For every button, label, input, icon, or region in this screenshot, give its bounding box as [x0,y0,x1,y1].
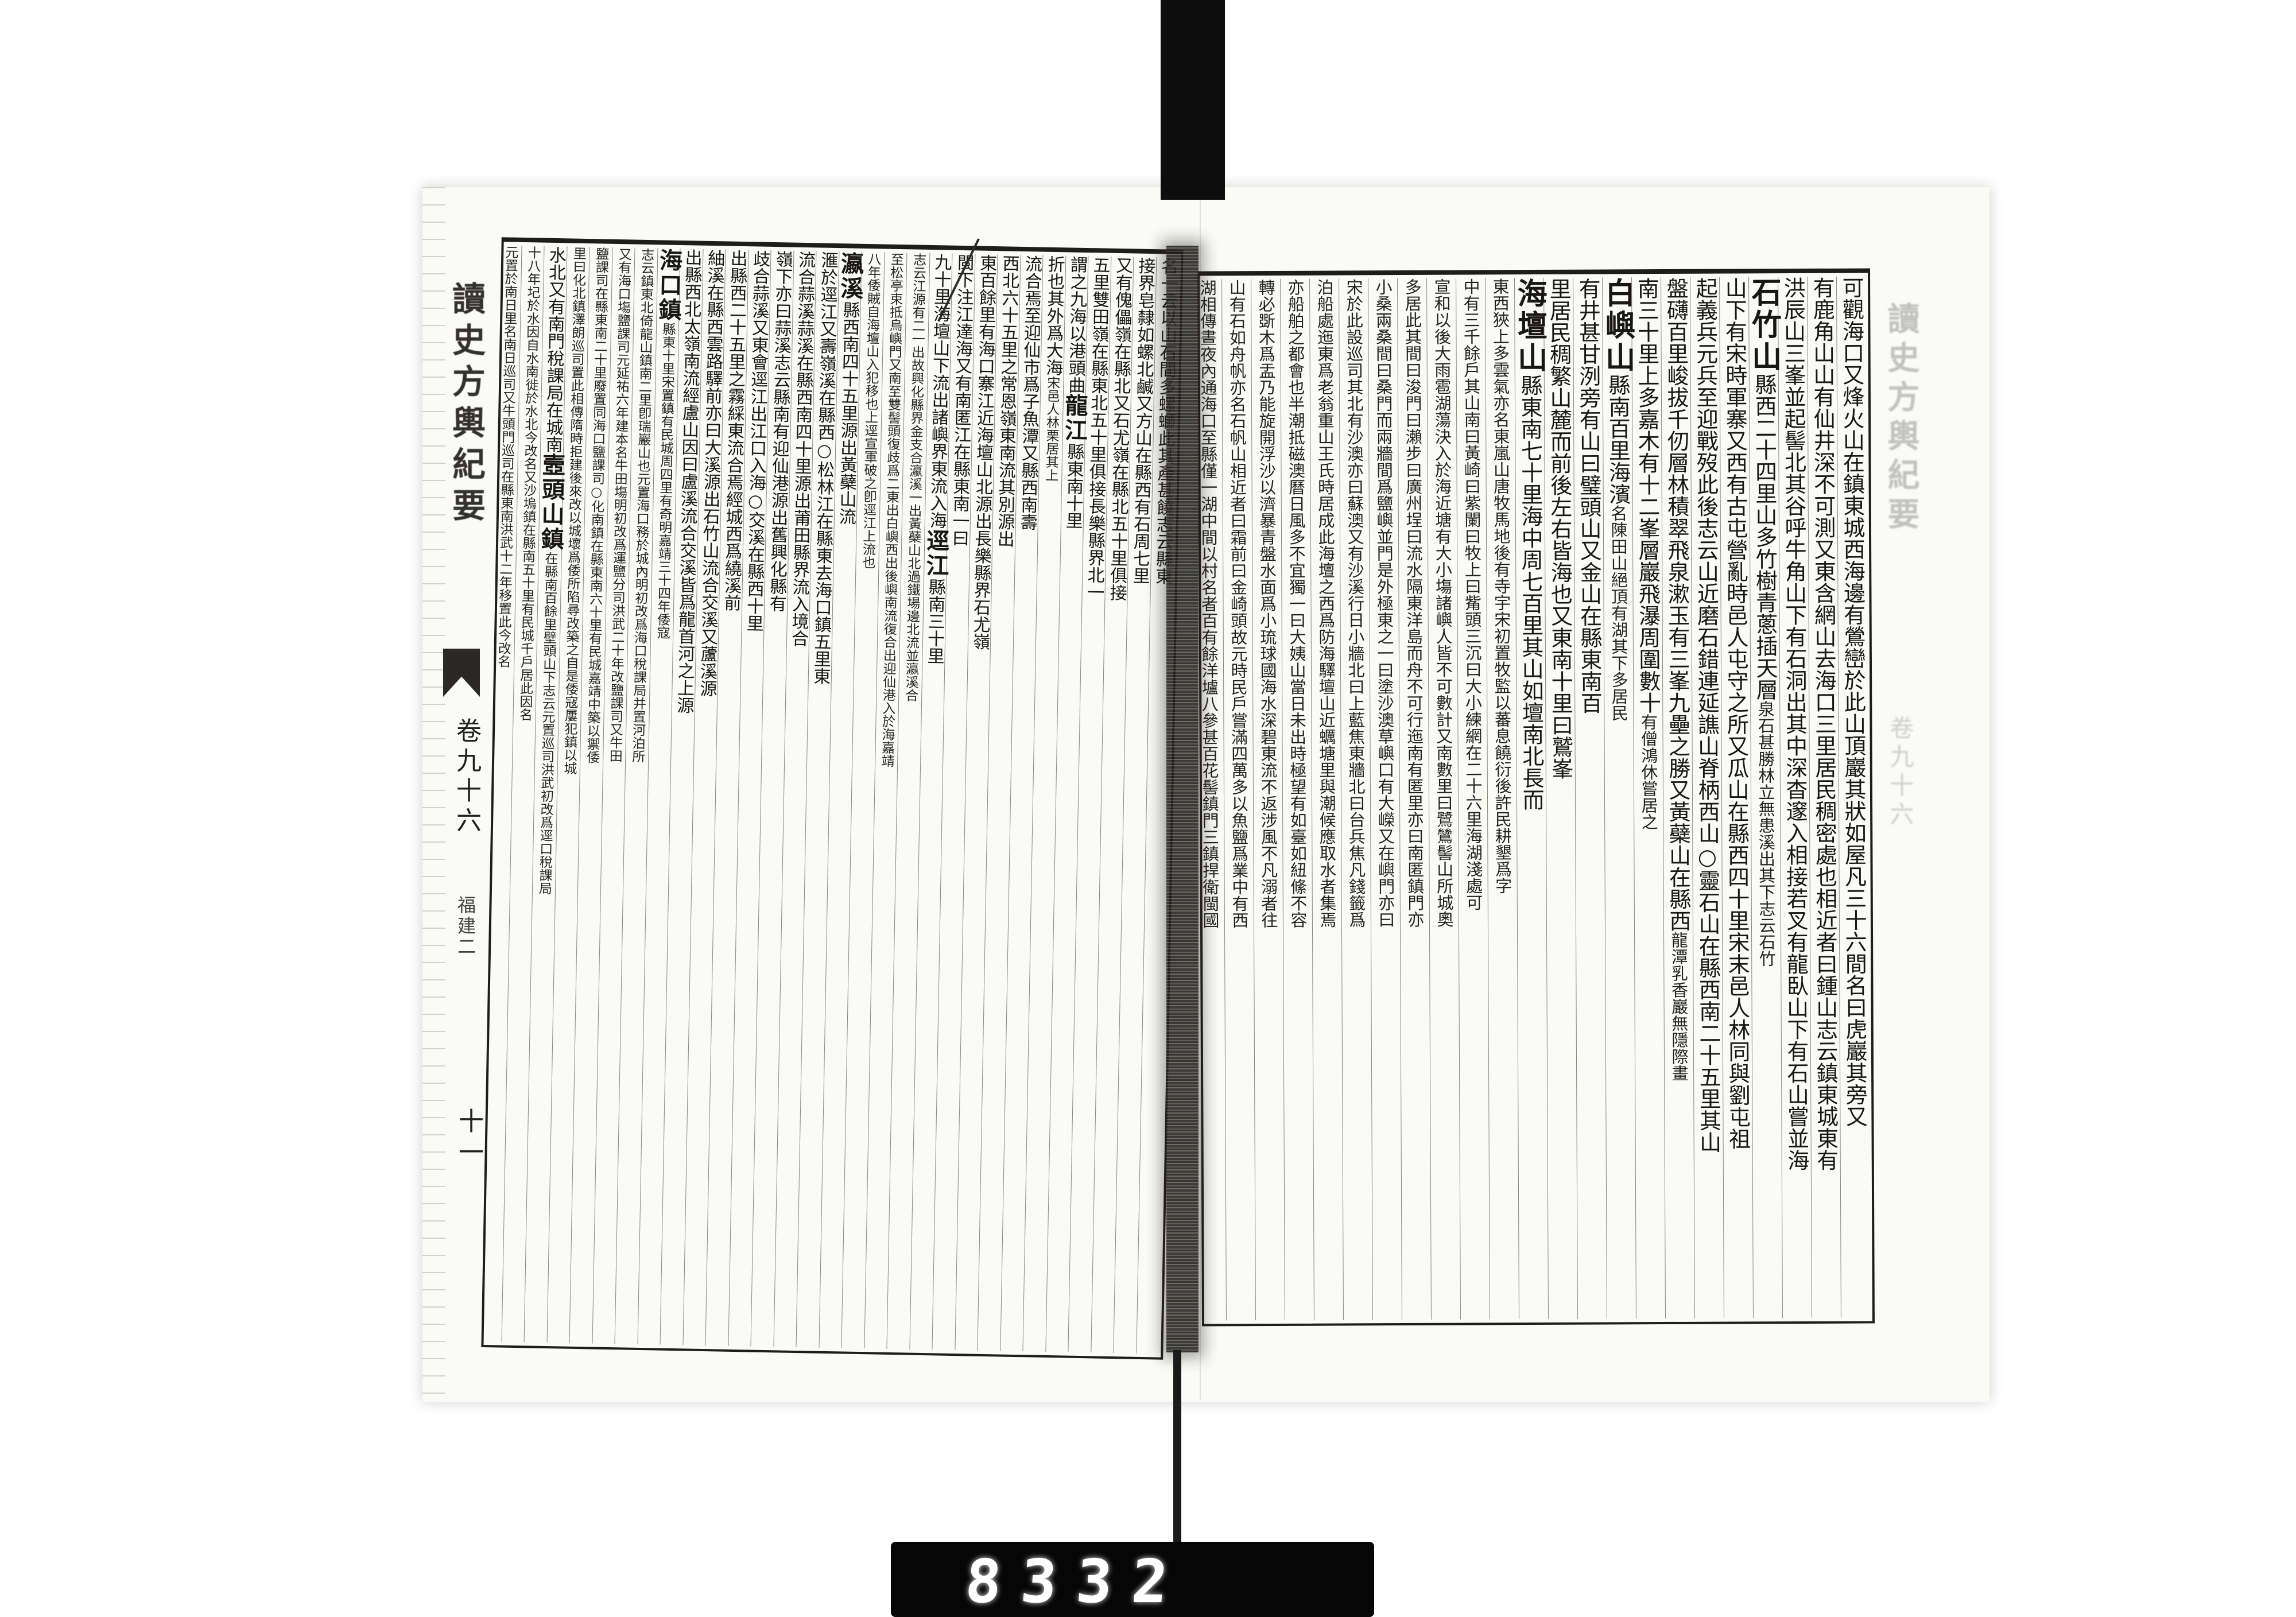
text-column: 山下有宋時軍寨又西有古屯營亂時邑人屯守之所又瓜山在縣西四十里宋末邑人林同與劉屯祖 [1719,277,1753,1318]
body-text: 洪辰山三峯並起髻北其谷呼牛角山下有石洞出其中深杳邃入相接若叉有龍臥山下有石山嘗並… [1780,277,1809,1171]
annotation-text: 東西狹上多雲氣亦名東嵐山唐牧馬地後有寺宇宋初置牧監以蕃息饒衍後許民耕墾爲字 [1490,278,1512,894]
body-text: 南三十里上多嘉木有十二峯層巖飛瀑周圍數十 [1634,277,1661,714]
body-text: 縣西二十四里山多竹樹青蔥插天層 [1751,373,1778,700]
body-text: 謂之九海以港頭曲 [1065,255,1087,394]
entry-heading: 逕江 [922,529,950,579]
text-column: 南三十里上多嘉木有十二峯層巖飛瀑周圍數十有僧鴻休嘗居之 [1631,277,1665,1319]
volume-label: 卷九十六 [448,718,484,837]
film-clamp-top-bar [1161,0,1225,200]
fishtail-mark [443,649,480,697]
body-text: 起義兵元兵至迎戰歿此後志云山近磨石錯連延譙山脊柄西山○靈石山在縣西南二十五里其山 [1692,277,1721,1153]
entry-heading: 瀛溪 [836,251,864,301]
left-margin-strip: 讀史方輿紀要 卷九十六 福建二 十一 [435,247,492,1355]
annotation-text: 宋邑人林栗居其上 [1043,376,1060,482]
annotation-text: 泉石甚勝林立無患溪出其下志云石竹 [1755,700,1776,967]
annotation-text: 宣和以後大雨雹湖蕩決入於海近塘有大小塲諸嶼人皆不可數計又南數里曰鷺鷥髻山所城奧 [1432,278,1454,928]
film-clamp-stem [1173,1350,1181,1545]
folio-number: 十一 [450,1108,487,1170]
annotation-text: 龍潭乳香巖無隱際畫 [1669,932,1689,1081]
body-text: 折也其外爲大海 [1042,255,1065,377]
annotation-text: 湖相傳晝夜內通海口至縣僅一湖中間以村名者百有餘洋壚八參甚百花髻鎮門三鎮捍衛閩國 [1197,279,1220,928]
text-column: 宋於此設巡司其北有沙澳亦曰蘇澳又有沙溪行日小牆北曰上藍焦東牆北曰台兵焦凡錢籤爲 [1339,278,1372,1320]
text-column: 東西狹上多雲氣亦名東嵐山唐牧馬地後有寺宇宋初置牧監以蕃息饒衍後許民耕墾爲字 [1485,278,1519,1319]
text-column: 盤礴百里峻拔千仞層林積翠飛泉漱玉有三峯九壘之勝又黃蘗山在縣西龍潭乳香巖無隱際畫 [1661,277,1694,1319]
annotation-text: 多居此其間曰浚門曰瀨步曰廣州埕曰流水隔東洋島而舟不可行迤南有匿里亦曰南匿鎮門亦 [1402,278,1425,928]
entry-heading: 壼頭山鎮 [537,453,565,552]
frame-counter-box: 8332 [891,1542,1374,1617]
text-column: 宣和以後大雨雹湖蕩決入於海近塘有大小塲諸嶼人皆不可數計又南數里曰鷺鷥髻山所城奧 [1426,278,1460,1320]
left-page-text-frame: 名一云以山石間多螺螄此其產甚饒志云縣東接界皂隸如螺北鹹又方山在縣西有石周七里又有… [481,237,1183,1359]
body-text: 水北又有南門稅課局在城南 [542,246,566,453]
text-column: 山有石如舟帆亦名石帆山相近者曰霜前曰金崎頭故元時民戶嘗滿四萬多以魚鹽爲業中有西 [1221,279,1255,1320]
annotation-text: 山有石如舟帆亦名石帆山相近者曰霜前曰金崎頭故元時民戶嘗滿四萬多以魚鹽爲業中有西 [1227,279,1249,928]
text-column: 起義兵元兵至迎戰歿此後志云山近磨石錯連延譙山脊柄西山○靈石山在縣西南二十五里其山 [1690,277,1724,1319]
annotation-text: 在縣南百餘里壁頭山下志云元置巡司洪武初改爲逕口稅課局 [536,552,557,895]
text-column: 泊船處迤東爲老翁重山王氏時居成此海壇之西爲防海驛壇山近蠣塘里與潮候應取水者集焉 [1309,278,1343,1320]
right-margin-strip: 讀史方輿紀要 卷九十六 [1874,279,1925,1324]
text-column: 海壇山縣東南七十里海中周七百里其山如壇南北長而 [1514,278,1548,1319]
entry-heading: 海口鎮 [654,248,682,323]
text-column: 湖相傳晝夜內通海口至縣僅一湖中間以村名者百有餘洋壚八參甚百花髻鎮門三鎮捍衛閩國 [1197,279,1226,1320]
frame-counter-digits: 8332 [963,1546,1190,1616]
annotation-text: 小桑兩桑間曰桑門而兩牆間爲鹽嶼並門是外極東之一曰塗沙澳草嶼口有大嶸又在嶼門亦曰 [1373,278,1395,928]
right-page-text-frame: 可觀海口又烽火山在鎮東城西海邊有鶯巒於此山頂巖其狀如屋凡三十六間名曰虎巖其旁又有… [1197,268,1875,1326]
body-text: 里居民稠繁山麓而前後左右皆海也又東南十里曰鷲峯 [1546,278,1573,780]
annotation-text: 中有三千餘戶其山南曰黃崎曰紫闌曰牧上曰觜頭三沉曰大小練網在二十六里海湖淺處可 [1461,278,1483,910]
spine-shadow [1166,246,1199,1352]
annotation-text: 縣東十里宋置鎮有民城周四里有奇明嘉靖三十四年倭寇 [654,322,675,639]
book-title: 讀史方輿紀要 [442,281,490,529]
text-column: 白嶼山縣南百里海濱名陳田山絕頂有湖其下多居民 [1602,277,1636,1319]
body-text: 縣南百里海濱 [1605,374,1631,505]
body-text: 山下有宋時軍寨又西有古屯營亂時邑人屯守之所又瓜山在縣西四十里宋末邑人林同與劉屯祖 [1721,277,1751,1149]
body-text: 縣東南七十里海中周七百里其山如壇南北長而 [1517,374,1544,811]
scanned-book-spread: 名一云以山石間多螺螄此其產甚饒志云縣東接界皂隸如螺北鹹又方山在縣西有石周七里又有… [0,0,2296,1617]
text-column: 亦船舶之都會也半潮抵磁澳曆日風多不宜獨一曰大姨山當日未出時極望有如臺如紐絛不容 [1280,279,1314,1320]
body-text: 縣東南十里 [1062,443,1084,529]
text-column: 可觀海口又烽火山在鎮東城西海邊有鶯巒於此山頂巖其狀如屋凡三十六間名曰虎巖其旁又 [1836,276,1870,1317]
text-column: 小桑兩桑間曰桑門而兩牆間爲鹽嶼並門是外極東之一曰塗沙澳草嶼口有大嶸又在嶼門亦曰 [1368,278,1402,1320]
body-text: 有井甚甘洌旁有山曰璧頭山又金山在縣東南百 [1575,278,1602,714]
annotation-text: 宋於此設巡司其北有沙澳亦曰蘇澳又有沙溪行日小牆北曰上藍焦東牆北曰台兵焦凡錢籤爲 [1344,278,1366,928]
text-column: 多居此其間曰浚門曰瀨步曰廣州埕曰流水隔東洋島而舟不可行迤南有匿里亦曰南匿鎮門亦 [1397,278,1431,1320]
entry-heading: 白嶼山 [1600,277,1635,374]
body-text: 九十里海壇山下流出諸嶼界東流入海 [926,253,952,529]
text-column: 有鹿角山山有仙井深不可測又東含網山去海口三里居民稠密處也相近者曰鍾山志云鎮東城東… [1807,277,1841,1318]
volume-label-faded: 卷九十六 [1883,715,1918,830]
text-column: 中有三千餘戶其山南曰黃崎曰紫闌曰牧上曰觜頭三沉曰大小練網在二十六里海湖淺處可 [1456,278,1490,1319]
body-text: 有鹿角山山有仙井深不可測又東含網山去海口三里居民稠密處也相近者曰鍾山志云鎮東城東… [1809,277,1839,1171]
body-text: 盤礴百里峻拔千仞層林積翠飛泉漱玉有三峯九壘之勝又黃蘗山在縣西 [1663,277,1691,932]
entry-heading: 龍江 [1060,393,1088,443]
annotation-text: 亦船舶之都會也半潮抵磁澳曆日風多不宜獨一曰大姨山當日未出時極望有如臺如紐絛不容 [1285,279,1308,928]
body-text: 縣西南四十五里源出黃蘗山流 [836,301,860,525]
annotation-text: 轉必斲木爲盂乃能旋開浮沙以濟暴青盤水面爲小琉球國海水深碧東流不返涉風不凡溺者往 [1256,279,1278,928]
annotation-text: 名陳田山絕頂有湖其下多居民 [1608,505,1629,721]
body-text: 縣南三十里 [924,578,945,665]
entry-heading: 海壇山 [1512,278,1548,374]
text-column: 轉必斲木爲盂乃能旋開浮沙以濟暴青盤水面爲小琉球國海水深碧東流不返涉風不凡溺者往 [1251,279,1285,1320]
body-text: 流合焉至迎仙市爲子魚潭又縣西南壽 [1017,255,1042,531]
text-column: 石竹山縣西二十四里山多竹樹青蔥插天層泉石甚勝林立無患溪出其下志云石竹 [1748,277,1782,1318]
annotation-text: 泊船處迤東爲老翁重山王氏時居成此海壇之西爲防海驛壇山近蠣塘里與潮候應取水者集焉 [1314,279,1337,928]
entry-heading: 石竹山 [1746,277,1782,373]
annotation-text: 有僧鴻休嘗居之 [1638,714,1658,830]
book-title-faded: 讀史方輿紀要 [1878,302,1925,536]
text-column: 里居民稠繁山麓而前後左右皆海也又東南十里曰鷲峯 [1543,278,1577,1319]
text-column: 洪辰山三峯並起髻北其谷呼牛角山下有石洞出其中深杳邃入相接若叉有龍臥山下有石山嘗並… [1778,277,1812,1318]
body-text: 可觀海口又烽火山在鎮東城西海邊有鶯巒於此山頂巖其狀如屋凡三十六間名曰虎巖其旁又 [1839,276,1867,1127]
text-column: 有井甚甘洌旁有山曰璧頭山又金山在縣東南百 [1573,277,1607,1319]
section-label: 福建二 [452,895,479,957]
